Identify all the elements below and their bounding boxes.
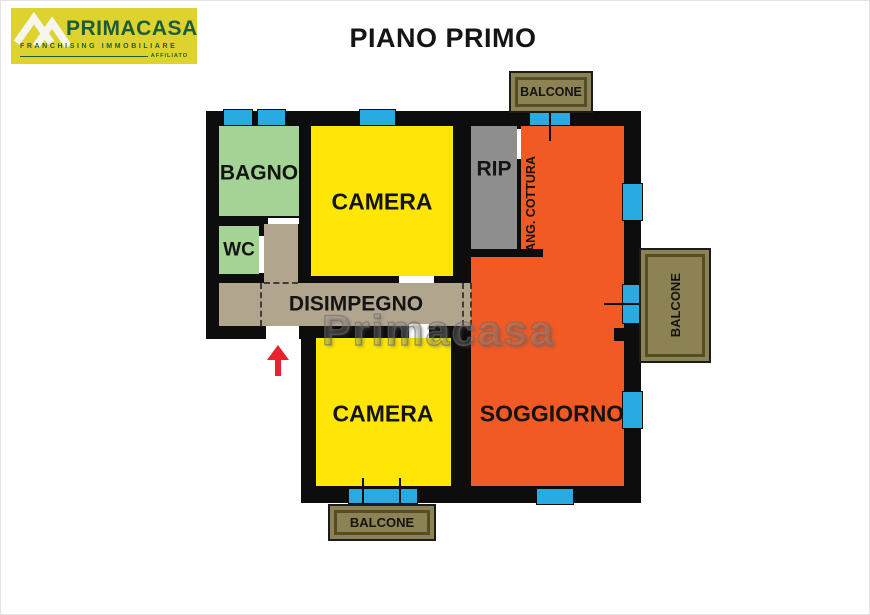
room-rip [471,126,517,249]
window-soggiorno-bottom [536,488,574,505]
page-title: PIANO PRIMO [273,23,613,54]
door-swing-left [260,283,262,326]
room-label-soggiorno: SOGGIORNO [480,403,624,426]
door-opening-camera-top [399,276,434,283]
window-camera-top [359,109,396,126]
window-bagno-2 [257,109,286,126]
logo-tagline-text: FRANCHISING IMMOBILIARE [20,43,177,50]
floor-plan: BALCONE BALCONE BALCONE BAGNO WC CAMERA … [206,69,718,549]
door-opening-rip [517,129,521,159]
door-opening-wc [259,236,264,273]
door-opening-entrance [266,326,299,339]
watermark: Primacasa [322,307,555,356]
balcony-right: BALCONE [639,248,711,363]
logo-affiliate-row: AFFILIATO [20,53,188,59]
balcony-bottom: BALCONE [328,504,436,541]
entrance-arrow-stem [275,359,281,376]
room-label-bagno: BAGNO [220,163,298,184]
door-swing-closet [264,282,298,284]
door-opening-bagno [268,218,299,224]
entrance-arrow-head [267,345,289,360]
closet-area [264,224,298,283]
balcony-top: BALCONE [509,71,593,113]
room-label-rip: RIP [476,159,511,180]
window-soggiorno-right-1 [622,183,643,221]
wall-notch [614,328,624,341]
room-label-wc: WC [223,241,255,260]
window-balcony-door-bottom [348,488,418,504]
balcony-right-label: BALCONE [669,273,682,337]
window-bagno-1 [223,109,253,126]
room-soggiorno-left [471,257,521,486]
balcony-bottom-label: BALCONE [350,516,414,529]
logo-rule-line [20,56,148,57]
room-label-ang-cottura: ANG. COTTURA [525,156,538,252]
room-label-camera-top: CAMERA [332,191,433,214]
window-soggiorno-right-2 [622,391,643,429]
room-label-camera-bottom: CAMERA [333,403,434,426]
logo-brand-text: PRIMACASA [66,17,198,41]
logo-affiliate-text: AFFILIATO [151,53,188,59]
floorplan-page: PRIMACASA FRANCHISING IMMOBILIARE AFFILI… [0,0,870,615]
primacasa-logo: PRIMACASA FRANCHISING IMMOBILIARE AFFILI… [11,8,197,64]
balcony-top-label: BALCONE [520,86,582,99]
